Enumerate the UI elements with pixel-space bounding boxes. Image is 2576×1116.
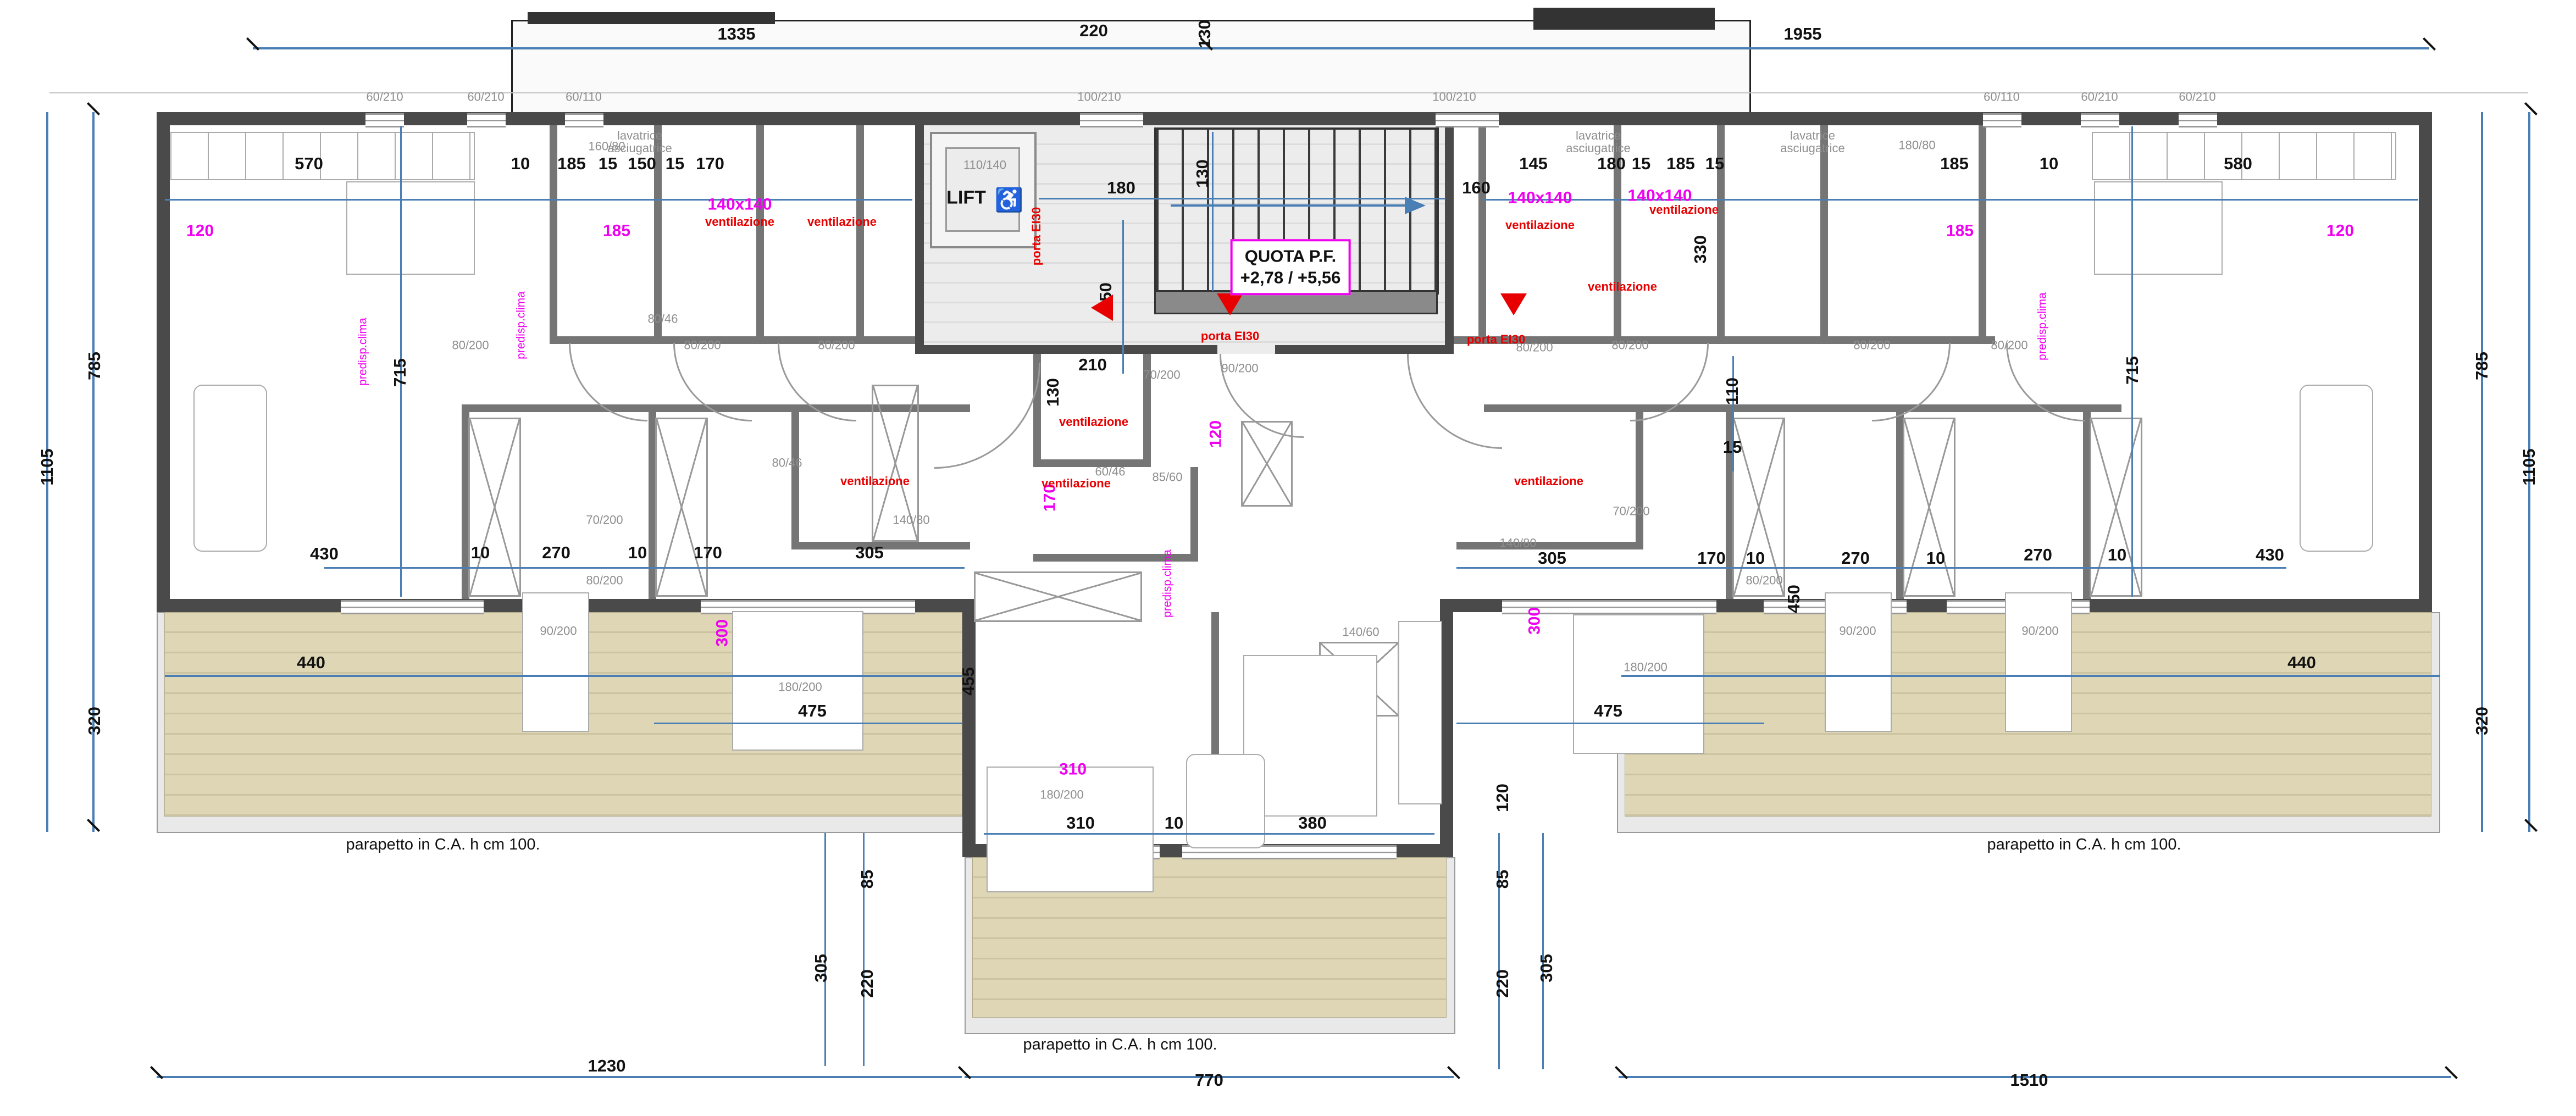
partition bbox=[1211, 612, 1219, 777]
dim-label: 270 bbox=[2024, 546, 2052, 564]
kitchen-counter bbox=[1398, 621, 1442, 804]
dim-label: 170 bbox=[694, 543, 722, 562]
partition bbox=[756, 125, 764, 343]
window bbox=[341, 600, 484, 614]
roof-bar bbox=[528, 12, 775, 24]
dim-label: 15 bbox=[1723, 438, 1742, 457]
dimension-line bbox=[1039, 198, 1445, 199]
magenta-label: 140x140 bbox=[708, 196, 772, 214]
size-label: 80/200 bbox=[1853, 338, 1890, 351]
dim-label: 330 bbox=[1691, 235, 1710, 264]
dim-label: 270 bbox=[1841, 549, 1870, 568]
dimension-line bbox=[824, 833, 826, 1066]
wall bbox=[157, 112, 170, 612]
window bbox=[1436, 113, 1499, 127]
dim-label: 185 bbox=[557, 154, 586, 173]
dim-label: 10 bbox=[1926, 549, 1945, 568]
size-label: 70/200 bbox=[1143, 368, 1180, 381]
wall bbox=[915, 125, 924, 354]
dim-label: 120 bbox=[1493, 784, 1512, 812]
size-label: lavatrice asciugatrice bbox=[1780, 129, 1844, 154]
magenta-label: predisp.clima bbox=[514, 291, 527, 359]
red-label: ventilazione bbox=[1505, 219, 1575, 232]
dim-label: 1335 bbox=[718, 25, 756, 43]
stair-direction-line bbox=[1171, 204, 1407, 207]
dimension-line bbox=[157, 1076, 962, 1078]
magenta-label: 185 bbox=[1946, 222, 1974, 240]
wardrobe bbox=[974, 571, 1142, 622]
floor-plan: LIFT ♿ QUOTA P.F. +2,78 / +5,56 13352201… bbox=[0, 0, 2576, 1116]
dim-label: 305 bbox=[1537, 954, 1556, 982]
wardrobe bbox=[1903, 418, 1955, 597]
size-label: 60/210 bbox=[366, 90, 403, 103]
dim-label: 210 bbox=[1078, 356, 1107, 374]
size-label: 180/200 bbox=[1624, 660, 1668, 673]
room-label bbox=[1244, 159, 1249, 179]
size-label: 60/210 bbox=[2081, 90, 2118, 103]
dim-label: 15 bbox=[666, 154, 684, 173]
size-label: 60/110 bbox=[1984, 90, 2020, 103]
magenta-label: predisp.clima bbox=[2036, 292, 2048, 360]
dimension-line bbox=[984, 833, 1434, 835]
dim-label: 10 bbox=[471, 543, 490, 562]
dim-label: 785 bbox=[85, 352, 104, 380]
magenta-label: 120 bbox=[1207, 420, 1225, 448]
dim-label: 715 bbox=[391, 358, 409, 387]
dim-label: 270 bbox=[542, 543, 570, 562]
dim-label: 220 bbox=[1079, 21, 1108, 40]
dim-label: 85 bbox=[858, 870, 877, 889]
size-label: 90/200 bbox=[540, 624, 577, 637]
dim-label: 10 bbox=[511, 154, 530, 173]
roof-bar bbox=[1533, 8, 1715, 30]
dimension-tick bbox=[2524, 819, 2538, 832]
dim-label: 455 bbox=[959, 667, 978, 696]
dim-label: 130 bbox=[1193, 159, 1212, 188]
window bbox=[2179, 113, 2217, 127]
dim-label: 1955 bbox=[1784, 25, 1822, 43]
bed bbox=[1573, 614, 1704, 754]
size-label: 180/80 bbox=[1898, 138, 1935, 151]
wardrobe bbox=[2090, 418, 2142, 597]
dim-label: 170 bbox=[696, 154, 724, 173]
upper-floor-outline bbox=[511, 20, 1751, 116]
dim-label: 770 bbox=[1195, 1071, 1223, 1090]
dim-label: 430 bbox=[310, 545, 339, 563]
size-label: 140/80 bbox=[893, 513, 929, 526]
dim-label: 450 bbox=[1785, 585, 1803, 613]
size-label: 80/200 bbox=[452, 338, 489, 351]
dim-label: 10 bbox=[2108, 546, 2126, 564]
parapet-note: parapetto in C.A. h cm 100. bbox=[1023, 1036, 1217, 1054]
dim-label: 715 bbox=[2123, 356, 2142, 385]
dim-label: 475 bbox=[1594, 702, 1622, 720]
dim-label: 305 bbox=[855, 543, 884, 562]
wall bbox=[1275, 345, 1454, 354]
ppp-down-arrow-icon bbox=[1500, 293, 1527, 315]
dimension-line bbox=[1542, 833, 1544, 1069]
magenta-label: 310 bbox=[1059, 760, 1087, 779]
dim-label: 10 bbox=[628, 543, 647, 562]
partition bbox=[1979, 125, 1986, 343]
dimension-line bbox=[1484, 199, 2418, 201]
dim-label: 180 bbox=[1107, 179, 1135, 197]
size-label: 140/60 bbox=[1342, 625, 1379, 638]
size-label: 70/200 bbox=[1613, 504, 1649, 517]
magenta-label: 120 bbox=[186, 222, 214, 240]
dim-label: 220 bbox=[1493, 969, 1512, 998]
ppp-left-arrow-icon bbox=[1091, 295, 1113, 321]
parapet-note: parapetto in C.A. h cm 100. bbox=[346, 836, 540, 854]
wardrobe bbox=[655, 418, 708, 597]
dining-table bbox=[2094, 181, 2223, 275]
size-label: 85/60 bbox=[1152, 470, 1182, 483]
size-label: 60/110 bbox=[566, 90, 602, 103]
size-label: 180/200 bbox=[778, 680, 822, 693]
dimension-line bbox=[253, 47, 2429, 49]
wardrobe bbox=[468, 418, 521, 597]
red-label: ventilazione bbox=[1059, 415, 1128, 429]
dim-label: 1510 bbox=[2010, 1071, 2048, 1090]
dimension-line bbox=[1122, 220, 1124, 374]
size-label: 180/200 bbox=[1040, 788, 1084, 801]
dim-label: 440 bbox=[2287, 653, 2316, 672]
sofa bbox=[2300, 385, 2373, 552]
parapet-note: parapetto in C.A. h cm 100. bbox=[1987, 836, 2181, 854]
red-label: ventilazione bbox=[1588, 280, 1657, 293]
dim-label: 130 bbox=[1195, 20, 1214, 48]
dim-label: 220 bbox=[858, 969, 877, 998]
size-label: 80/200 bbox=[1611, 338, 1648, 351]
quota-line2: +2,78 / +5,56 bbox=[1240, 267, 1341, 288]
dim-label: 1105 bbox=[2520, 448, 2539, 485]
size-label: 100/210 bbox=[1077, 90, 1121, 103]
dim-label: 580 bbox=[2224, 154, 2252, 173]
dim-label: 570 bbox=[295, 154, 323, 173]
dim-label: 130 bbox=[1044, 378, 1062, 407]
size-label: 60/210 bbox=[2179, 90, 2215, 103]
dim-label: 320 bbox=[85, 707, 104, 735]
red-label: porta EI30 bbox=[1201, 330, 1259, 343]
dim-label: 180 bbox=[1597, 154, 1626, 173]
dim-label: 1105 bbox=[38, 448, 57, 485]
window bbox=[2081, 113, 2119, 127]
wheelchair-icon: ♿ bbox=[995, 187, 1023, 213]
lift-label: LIFT bbox=[946, 187, 986, 208]
magenta-label: predisp.clima bbox=[1161, 549, 1173, 618]
door-arc bbox=[1407, 354, 1502, 449]
dim-label: 475 bbox=[798, 702, 827, 720]
red-label: ventilazione bbox=[1042, 477, 1111, 490]
dim-label: 15 bbox=[1705, 154, 1724, 173]
wall bbox=[915, 345, 1217, 354]
magenta-label: predisp.clima bbox=[356, 318, 369, 386]
partition bbox=[1478, 125, 1486, 343]
size-label: lavatrice asciugatrice bbox=[1566, 129, 1630, 154]
ppp-marker bbox=[1091, 295, 1118, 321]
dim-label: 145 bbox=[1519, 154, 1548, 173]
extension-line bbox=[49, 92, 2528, 93]
dimension-line bbox=[1498, 833, 1500, 1069]
size-label: 80/200 bbox=[684, 338, 721, 351]
size-label: 80/46 bbox=[647, 312, 678, 325]
dimension-line bbox=[1456, 723, 1764, 724]
dim-label: 305 bbox=[812, 954, 830, 982]
size-label: 90/200 bbox=[2021, 624, 2058, 637]
magenta-label: 140x140 bbox=[1508, 189, 1572, 207]
red-label: ventilazione bbox=[705, 215, 774, 229]
dim-label: 15 bbox=[1632, 154, 1650, 173]
wall bbox=[962, 599, 976, 857]
size-label: 80/200 bbox=[586, 574, 623, 586]
red-label: ventilazione bbox=[807, 215, 877, 229]
dim-label: 185 bbox=[1940, 154, 1969, 173]
bed bbox=[1825, 592, 1892, 732]
dimension-line bbox=[654, 723, 962, 724]
window bbox=[467, 113, 506, 127]
size-label: 60/210 bbox=[467, 90, 504, 103]
window bbox=[1983, 113, 2021, 127]
window bbox=[365, 113, 404, 127]
size-label: 110/140 bbox=[963, 158, 1006, 171]
dim-label: 320 bbox=[2473, 707, 2491, 735]
dimension-line bbox=[165, 199, 912, 201]
dim-label: 785 bbox=[2473, 352, 2491, 380]
partition bbox=[550, 125, 557, 343]
dim-label: 10 bbox=[1746, 549, 1765, 568]
partition bbox=[1820, 125, 1828, 343]
wall bbox=[1445, 125, 1454, 354]
dimension-line bbox=[1621, 675, 2440, 677]
dimension-line bbox=[324, 567, 965, 569]
partition bbox=[1033, 459, 1151, 467]
bed bbox=[522, 592, 589, 732]
red-label: ventilazione bbox=[1514, 475, 1583, 488]
dimension-line bbox=[863, 833, 865, 1066]
dim-label: 10 bbox=[1165, 814, 1183, 832]
dining-table bbox=[346, 181, 475, 275]
size-label: 140/80 bbox=[1499, 536, 1536, 549]
dim-label: 85 bbox=[1493, 870, 1512, 889]
red-label: ventilazione bbox=[840, 475, 910, 488]
size-label: 70/200 bbox=[586, 513, 623, 526]
magenta-label: 120 bbox=[2326, 222, 2354, 240]
window bbox=[565, 113, 603, 127]
partition bbox=[1484, 404, 2121, 412]
dim-label: 440 bbox=[297, 653, 325, 672]
dim-label: 110 bbox=[1723, 377, 1742, 405]
size-label: lavatrice asciugatrice bbox=[607, 129, 672, 154]
dimension-line bbox=[1212, 132, 1214, 291]
dimension-line bbox=[1456, 567, 2286, 569]
partition bbox=[1636, 404, 1643, 549]
dim-label: 185 bbox=[1666, 154, 1695, 173]
magenta-label: 140x140 bbox=[1628, 187, 1692, 205]
dim-label: 15 bbox=[599, 154, 617, 173]
dim-label: 170 bbox=[1697, 549, 1726, 568]
magenta-label: 300 bbox=[1526, 607, 1544, 635]
size-label: 80/200 bbox=[1746, 574, 1782, 586]
door-arc bbox=[934, 363, 1040, 469]
sofa bbox=[193, 385, 267, 552]
dim-label: 310 bbox=[1066, 814, 1095, 832]
red-label: ventilazione bbox=[1649, 203, 1719, 216]
bed bbox=[2005, 592, 2072, 732]
partition bbox=[856, 125, 864, 343]
red-label: porta EI30 bbox=[1467, 333, 1525, 346]
magenta-label: 300 bbox=[713, 619, 732, 647]
window bbox=[1080, 113, 1143, 127]
dim-label: 150 bbox=[628, 154, 656, 173]
dim-label: 1230 bbox=[588, 1057, 626, 1075]
size-label: 90/200 bbox=[1839, 624, 1876, 637]
ppp-marker bbox=[1500, 291, 1527, 315]
dimension-tick bbox=[2524, 102, 2538, 115]
quota-line1: QUOTA P.F. bbox=[1240, 246, 1341, 267]
ppp-down-arrow-icon bbox=[1217, 293, 1243, 315]
size-label: 80/200 bbox=[1991, 338, 2027, 351]
partition bbox=[1190, 467, 1198, 562]
red-label: porta EI30 bbox=[1030, 207, 1043, 265]
dimension-line bbox=[165, 675, 962, 677]
size-label: 80/200 bbox=[818, 338, 855, 351]
partition bbox=[791, 404, 799, 549]
size-label: 90/200 bbox=[1221, 362, 1258, 374]
magenta-label: 185 bbox=[603, 222, 630, 240]
size-label: 80/46 bbox=[772, 456, 802, 469]
dim-label: 380 bbox=[1298, 814, 1327, 832]
dim-label: 160 bbox=[1462, 179, 1491, 197]
wall bbox=[2419, 112, 2432, 612]
dim-label: 430 bbox=[2256, 546, 2284, 564]
dim-label: 305 bbox=[1538, 549, 1566, 568]
quota-box: QUOTA P.F. +2,78 / +5,56 bbox=[1231, 239, 1351, 295]
size-label: 100/210 bbox=[1432, 90, 1476, 103]
dim-label: 10 bbox=[2040, 154, 2058, 173]
